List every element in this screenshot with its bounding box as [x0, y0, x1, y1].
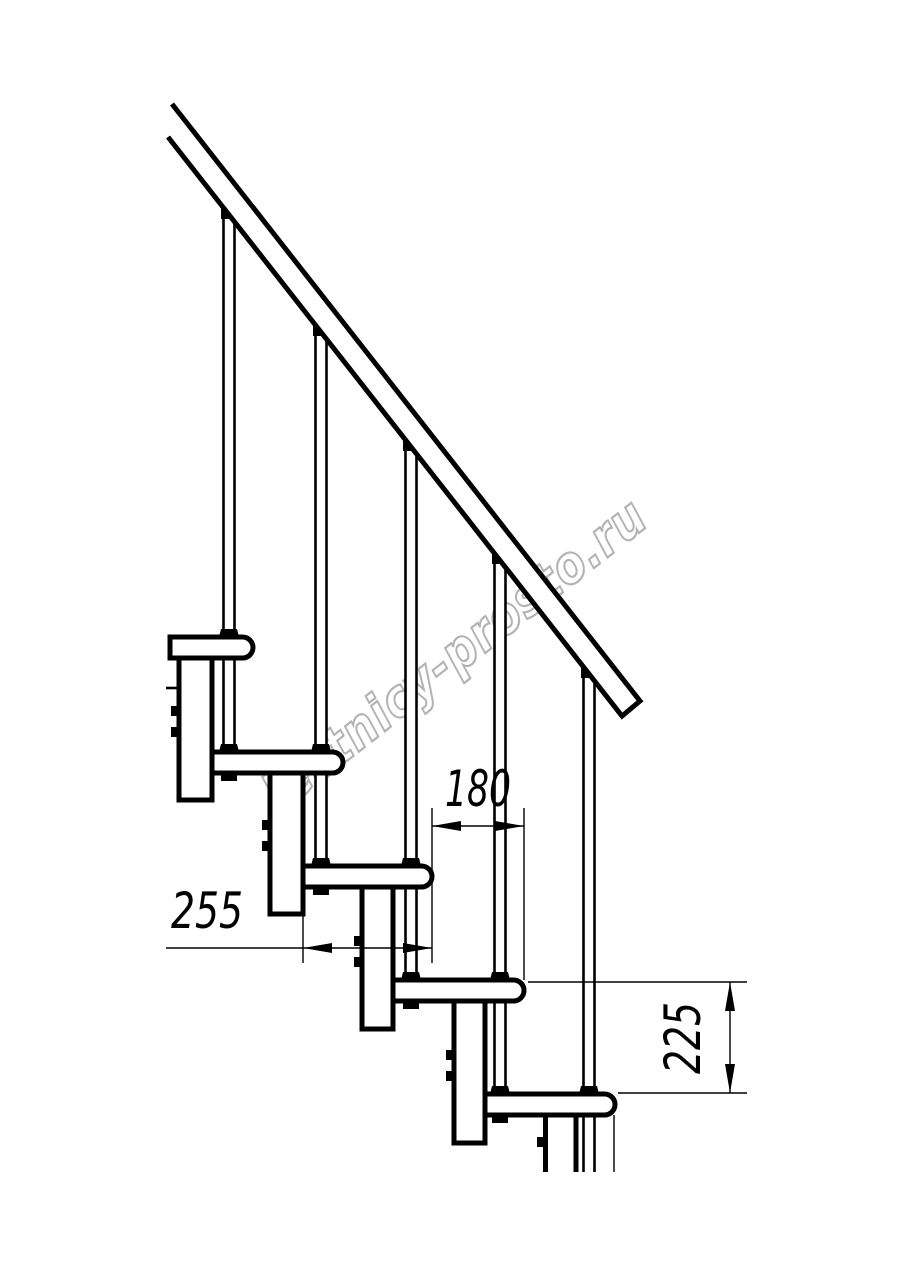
tread-3: [303, 866, 432, 887]
dimension-225: 225: [528, 982, 747, 1093]
baluster-3: [406, 442, 417, 980]
baluster-1: [224, 210, 235, 752]
support-module-1: [166, 658, 212, 800]
dimension-255-label: 255: [171, 882, 243, 940]
tread-2: [212, 752, 343, 773]
support-module-2: [262, 773, 303, 914]
dimension-180: 180: [432, 760, 524, 980]
tread-1: [170, 637, 253, 658]
tread-4: [393, 980, 524, 1001]
baluster-2: [316, 327, 327, 866]
technical-drawing-page: lestnicy-prosto.ru: [0, 0, 914, 1280]
support-module-5: [537, 1115, 576, 1172]
dimension-225-label: 225: [654, 1002, 712, 1074]
handrail: [168, 104, 640, 716]
tread-5: [485, 1094, 615, 1115]
support-module-4: [446, 1001, 485, 1143]
staircase-drawing: lestnicy-prosto.ru: [0, 0, 914, 1280]
dimension-180-label: 180: [445, 760, 511, 818]
support-module-3: [354, 887, 393, 1029]
